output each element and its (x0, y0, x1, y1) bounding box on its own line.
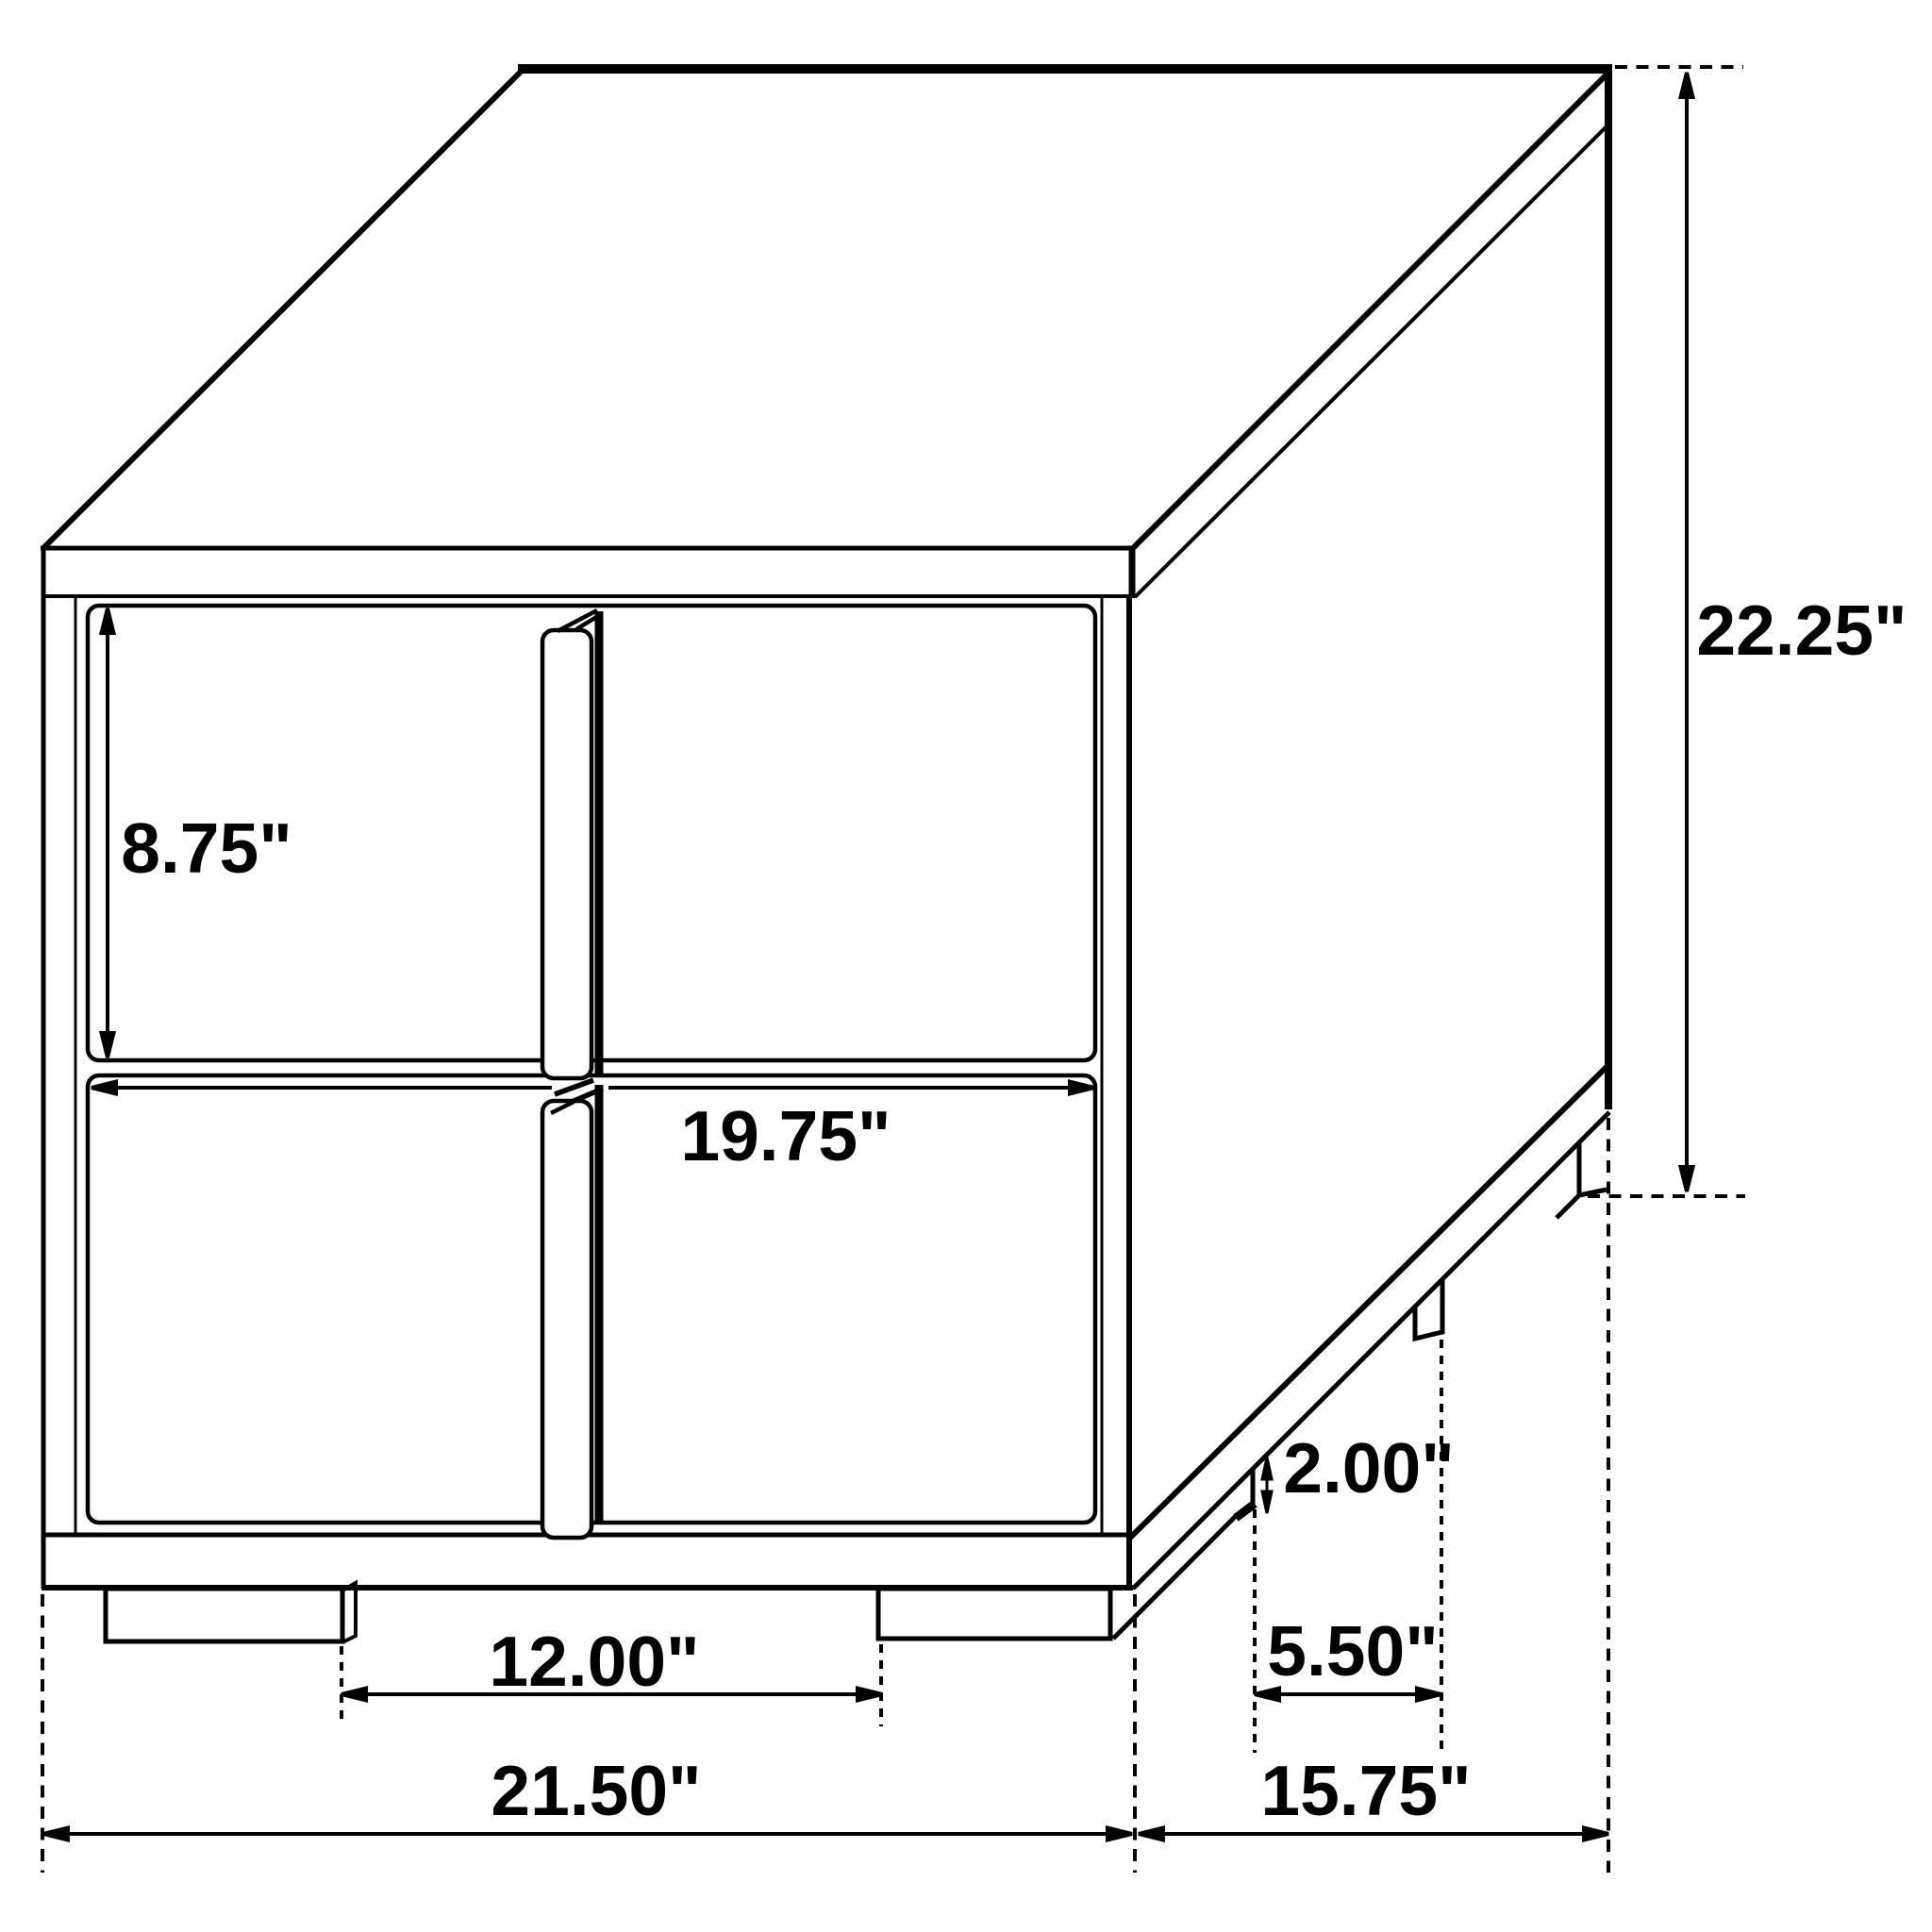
svg-text:12.00": 12.00" (489, 1622, 699, 1701)
svg-text:8.75": 8.75" (121, 808, 292, 888)
svg-text:19.75": 19.75" (680, 1096, 891, 1175)
svg-text:22.25": 22.25" (1696, 591, 1907, 670)
svg-text:5.50": 5.50" (1267, 1611, 1439, 1690)
svg-text:2.00": 2.00" (1283, 1428, 1455, 1507)
svg-text:21.50": 21.50" (491, 1751, 701, 1830)
svg-text:15.75": 15.75" (1260, 1751, 1471, 1830)
